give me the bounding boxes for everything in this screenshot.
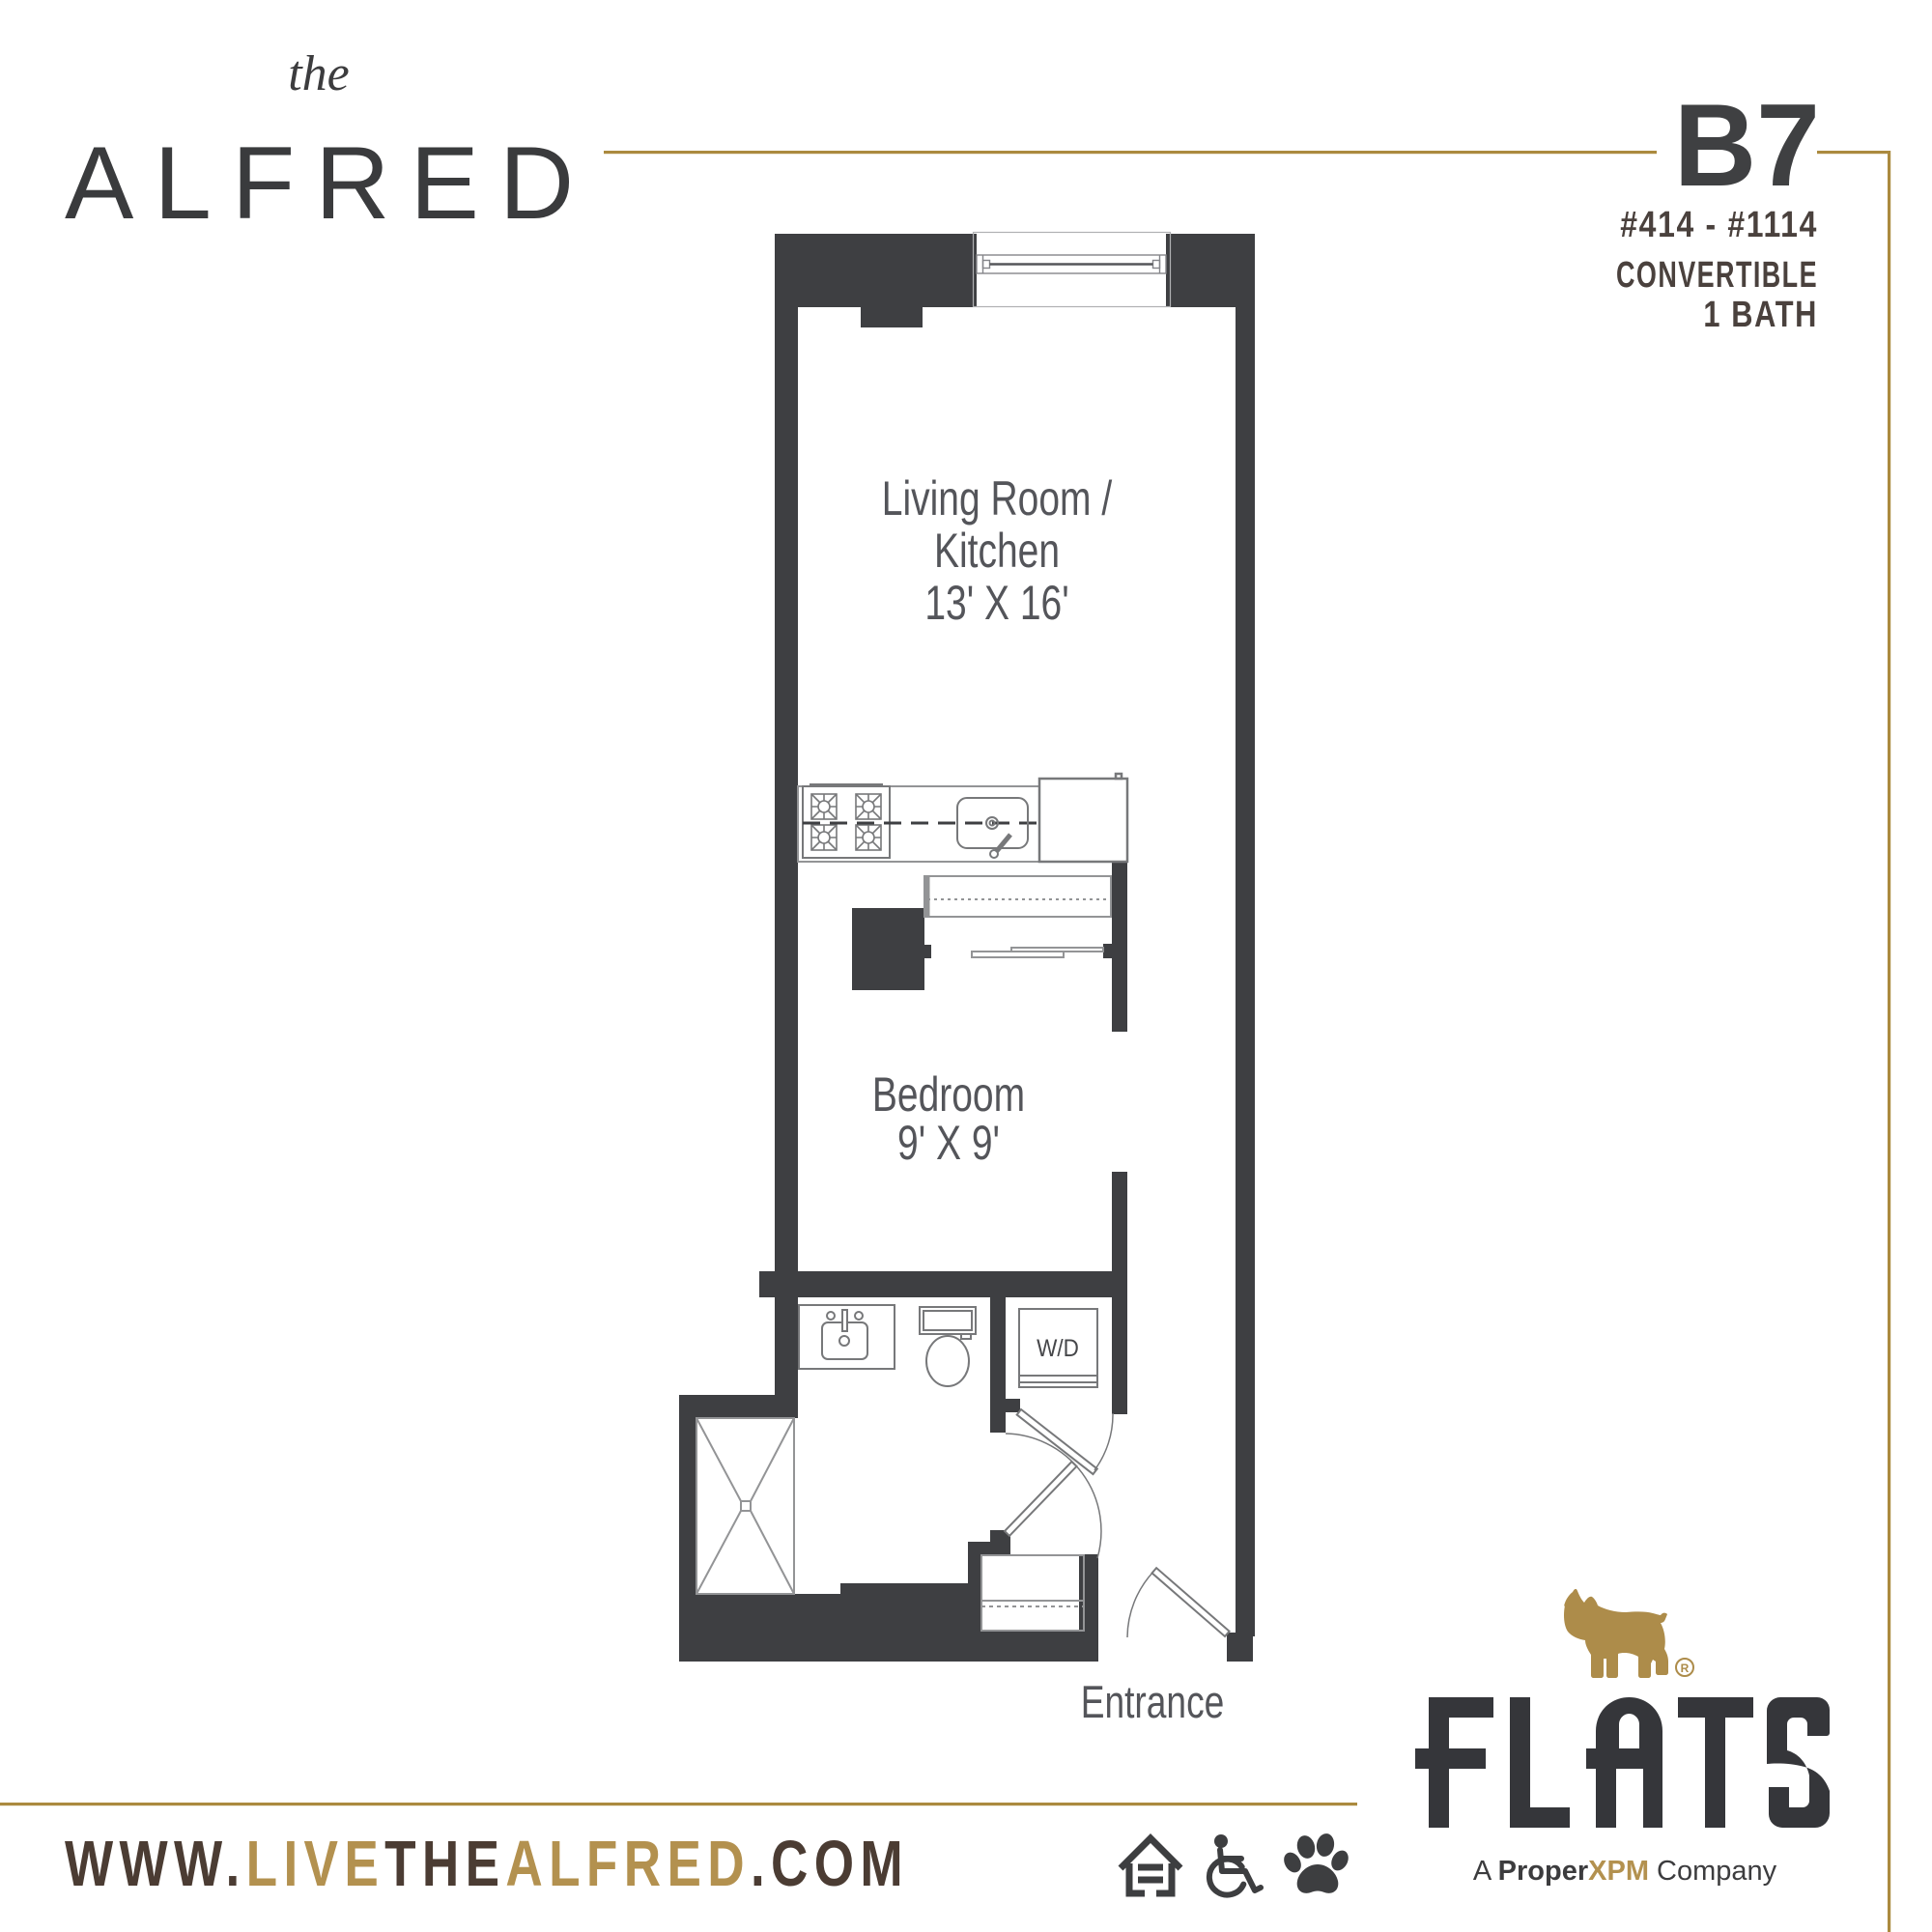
svg-text:W/D: W/D: [1037, 1335, 1079, 1362]
svg-text:R: R: [1681, 1662, 1690, 1675]
